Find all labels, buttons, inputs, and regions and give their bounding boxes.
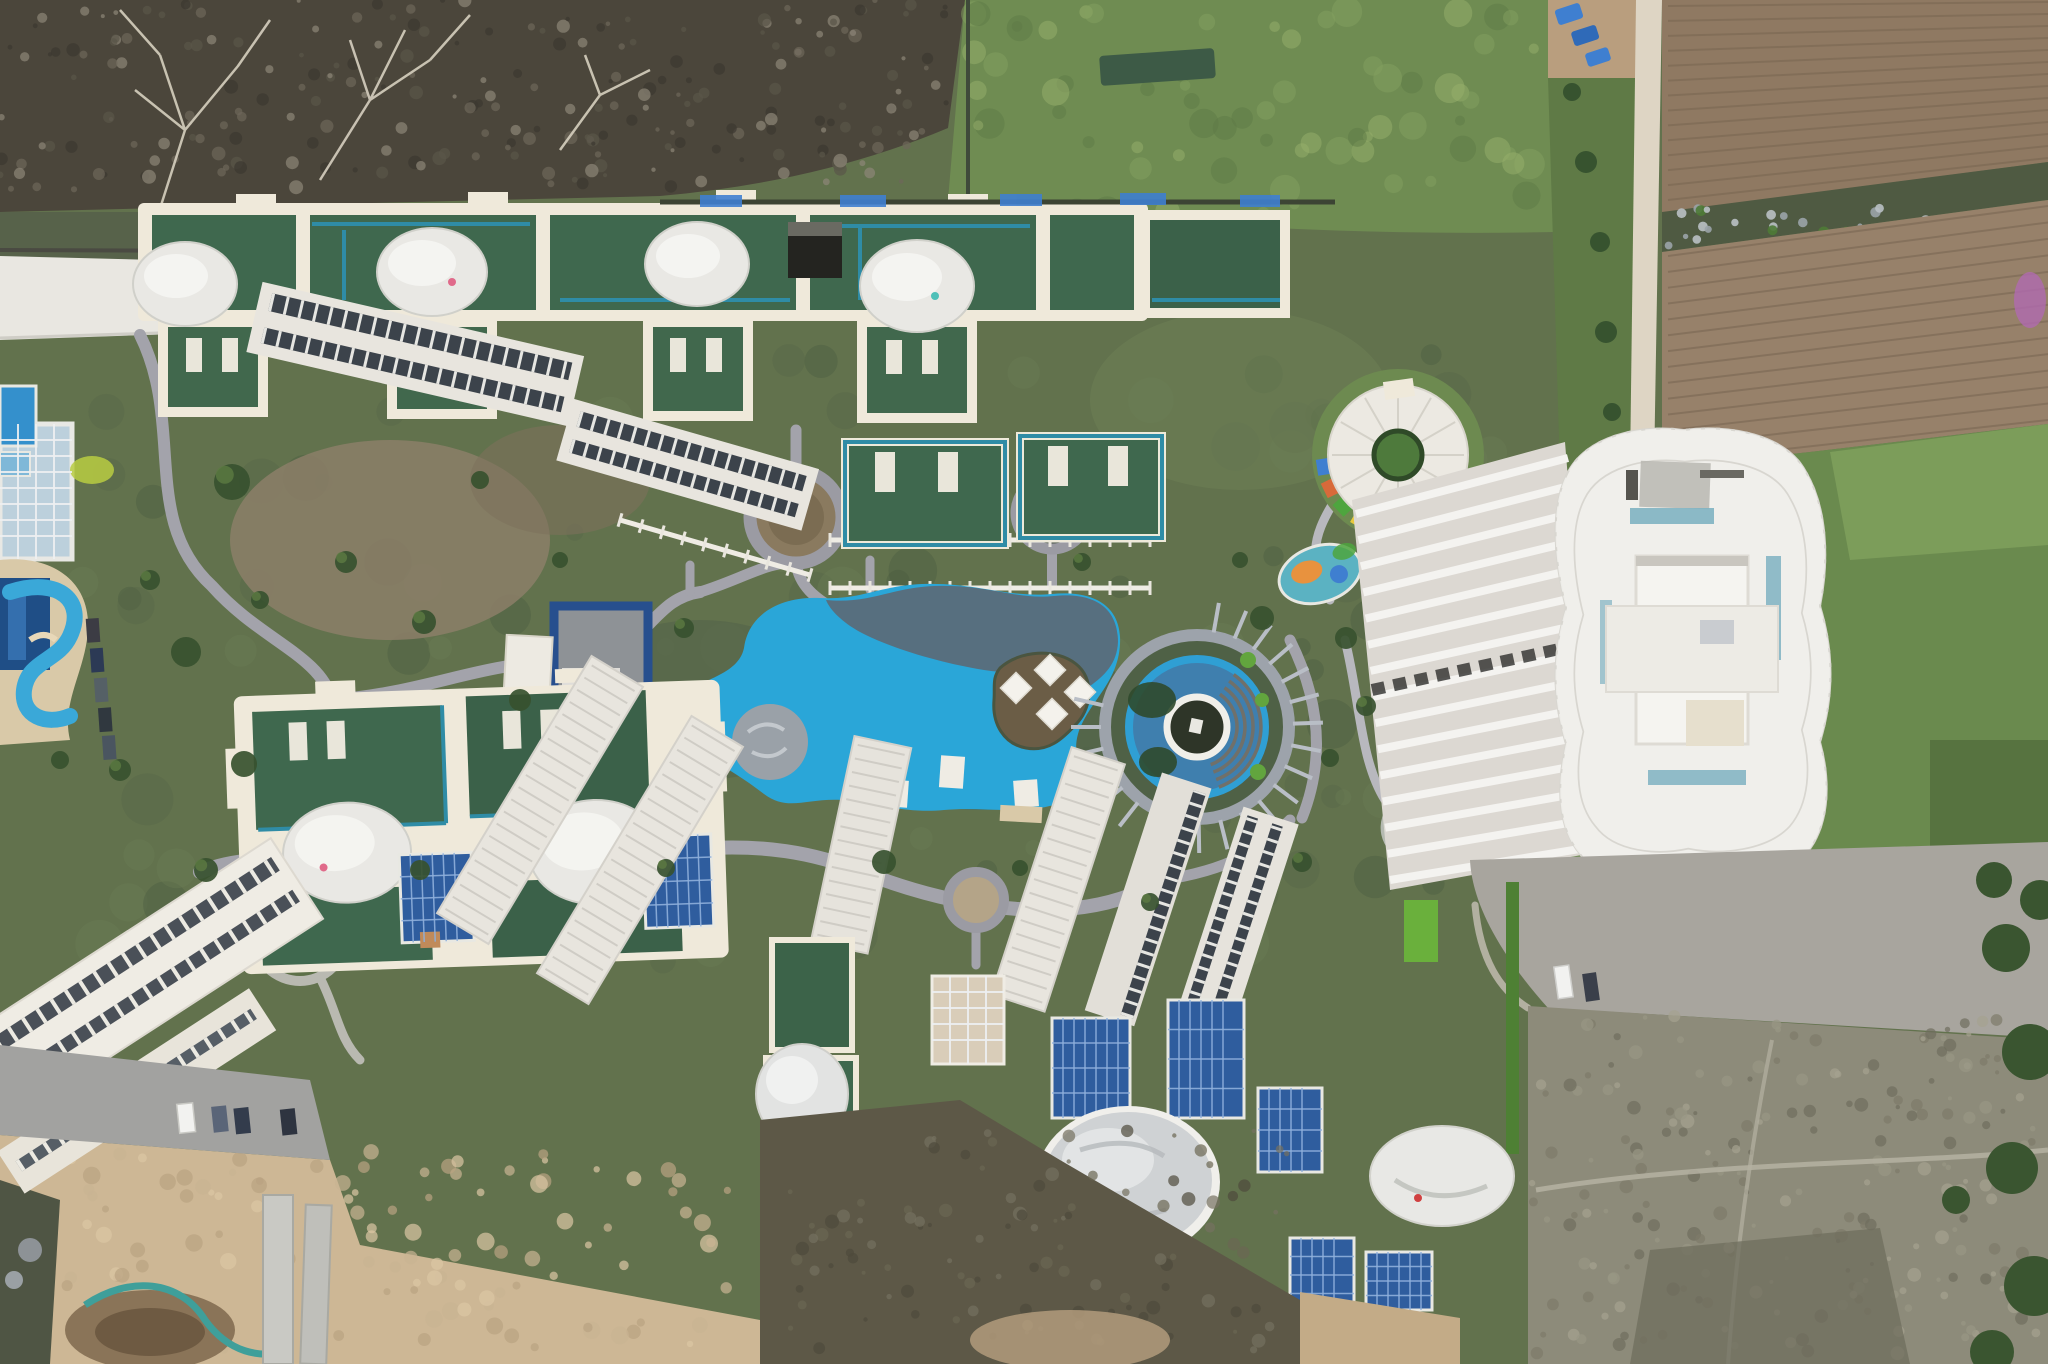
dome-highlight <box>766 1056 818 1104</box>
plaza-ring <box>948 872 1004 928</box>
bush <box>1250 764 1266 780</box>
tree-highlight <box>336 552 347 563</box>
concrete-piles <box>300 1205 332 1364</box>
tree-highlight <box>141 571 151 581</box>
tree <box>1232 552 1248 568</box>
car <box>86 618 101 643</box>
hedge-strip <box>1506 882 1519 1154</box>
terrace-bar <box>1108 446 1128 486</box>
flower-patch <box>2014 272 2046 328</box>
bush <box>1240 652 1256 668</box>
car <box>233 1107 251 1134</box>
tree-highlight <box>1293 853 1303 863</box>
glass-strip <box>1648 770 1746 785</box>
tree-highlight <box>216 466 234 484</box>
tree <box>509 689 531 711</box>
car <box>280 1108 298 1135</box>
west-vegetation <box>0 1180 60 1364</box>
amphi-foliage <box>1128 682 1176 718</box>
green-roof <box>772 940 852 1050</box>
dark-soil-patch <box>1630 1228 1910 1364</box>
tree <box>1590 232 1610 252</box>
terrace-bar <box>1048 446 1068 486</box>
terrace-bar <box>938 452 958 492</box>
lawn-panel <box>1404 900 1438 962</box>
green-roof <box>1150 220 1280 308</box>
tree <box>1321 749 1339 767</box>
core-detail <box>1700 620 1734 644</box>
tree-highlight <box>413 611 425 623</box>
wing-green-roof <box>648 322 748 416</box>
tree-highlight <box>1142 894 1151 903</box>
tree <box>552 552 568 568</box>
tree <box>1250 606 1274 630</box>
core-wing <box>1606 606 1778 692</box>
tree-highlight <box>110 760 121 771</box>
tree-highlight <box>675 619 685 629</box>
wall-tab <box>315 680 355 695</box>
glass-strip <box>1630 508 1714 524</box>
excavation-pit-center <box>95 1308 205 1356</box>
roof-slot <box>1626 470 1638 500</box>
bush <box>1255 693 1269 707</box>
tree <box>1595 321 1617 343</box>
tree <box>171 637 201 667</box>
core-beige <box>1686 700 1744 746</box>
tree-highlight <box>658 860 667 869</box>
tree <box>1012 860 1028 876</box>
wing-green-roof <box>862 322 972 418</box>
roof-plant <box>1639 461 1711 509</box>
dome-highlight <box>872 253 942 301</box>
car <box>90 648 105 673</box>
rocks <box>18 1238 42 1262</box>
core-edge <box>1636 556 1748 566</box>
roof-detail <box>420 931 441 948</box>
tree-highlight <box>1357 697 1367 707</box>
car <box>102 735 117 760</box>
tree <box>231 751 257 777</box>
high-rise-tower <box>1352 428 1831 890</box>
dome-highlight <box>388 240 456 286</box>
dome-detail <box>1414 1194 1422 1202</box>
dome-highlight <box>144 254 208 298</box>
wing-green-roof <box>163 322 263 412</box>
dome-highlight <box>656 234 720 278</box>
car <box>211 1105 229 1132</box>
rocks <box>5 1271 23 1289</box>
tree <box>1335 627 1357 649</box>
tree <box>872 850 896 874</box>
dome-detail <box>931 292 939 300</box>
dome-detail <box>448 278 456 286</box>
terrace <box>845 442 1005 545</box>
tree-highlight <box>195 859 207 871</box>
round-deck <box>732 704 808 780</box>
amphi-foliage <box>1139 747 1177 777</box>
green-terraces <box>845 436 1162 545</box>
car <box>98 707 113 732</box>
aerial-photo <box>0 0 2048 1364</box>
tree-highlight <box>252 592 261 601</box>
tree <box>410 860 430 880</box>
tree <box>1603 403 1621 421</box>
courtyard-edge <box>788 222 842 236</box>
terrace-bar <box>875 452 895 492</box>
tree <box>51 751 69 769</box>
tree <box>1575 151 1597 173</box>
terrace <box>1020 436 1162 538</box>
white-car <box>177 1103 196 1134</box>
tree-highlight <box>1074 554 1083 563</box>
tree <box>471 471 489 489</box>
pavilion-center-garden <box>1374 431 1422 479</box>
bubble-dome <box>1370 1126 1514 1226</box>
concrete-piles <box>263 1195 293 1364</box>
plunge-pool-lane <box>8 590 26 660</box>
tree <box>1563 83 1581 101</box>
roof-slot <box>1700 470 1744 478</box>
yellow-green-patch <box>70 456 114 484</box>
car <box>94 678 109 703</box>
